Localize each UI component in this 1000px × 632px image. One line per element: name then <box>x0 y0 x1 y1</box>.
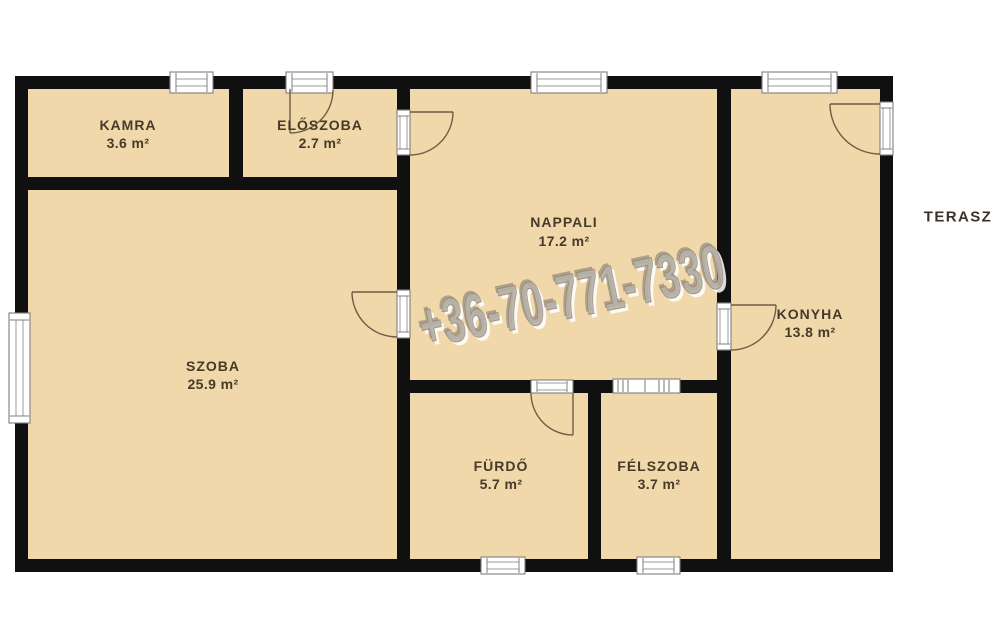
wall-kamra-eloszoba <box>229 89 243 177</box>
room-area-nappali: 17.2 m² <box>538 233 589 249</box>
terrace-label: TERASZ <box>924 209 992 226</box>
room-name-felszoba: FÉLSZOBA <box>617 458 700 474</box>
room-area-eloszoba: 2.7 m² <box>299 135 342 151</box>
wall-exterior-top <box>15 76 893 89</box>
window-kamra <box>170 72 213 93</box>
room-area-furdo: 5.7 m² <box>480 476 523 492</box>
room-area-szoba: 25.9 m² <box>187 376 238 392</box>
room-name-nappali: NAPPALI <box>530 214 597 230</box>
floor-plan: KAMRA 3.6 m² ELŐSZOBA 2.7 m² NAPPALI 17.… <box>0 0 1000 632</box>
wall-kamra-szoba <box>28 177 410 190</box>
room-area-kamra: 3.6 m² <box>107 135 150 151</box>
room-area-konyha: 13.8 m² <box>784 324 835 340</box>
window-furdo <box>481 557 525 574</box>
window-felszoba <box>637 557 680 574</box>
room-floor-eloszoba <box>243 89 397 177</box>
wall-exterior-bottom <box>15 559 893 572</box>
room-floor-szoba <box>28 190 397 559</box>
room-name-szoba: SZOBA <box>186 358 240 374</box>
room-floor-kamra <box>28 89 229 177</box>
window-nappali <box>531 72 607 93</box>
wall-furdo-felszoba <box>588 393 601 559</box>
window-szoba <box>9 313 30 423</box>
room-area-felszoba: 3.7 m² <box>638 476 681 492</box>
room-name-kamra: KAMRA <box>99 117 156 133</box>
floor-plan-drawing: KAMRA 3.6 m² ELŐSZOBA 2.7 m² NAPPALI 17.… <box>0 0 1000 632</box>
room-name-eloszoba: ELŐSZOBA <box>277 116 363 133</box>
room-name-konyha: KONYHA <box>777 306 844 322</box>
room-name-furdo: FÜRDŐ <box>474 457 529 474</box>
window-konyha <box>762 72 837 93</box>
window-internal-felszoba <box>613 379 680 393</box>
